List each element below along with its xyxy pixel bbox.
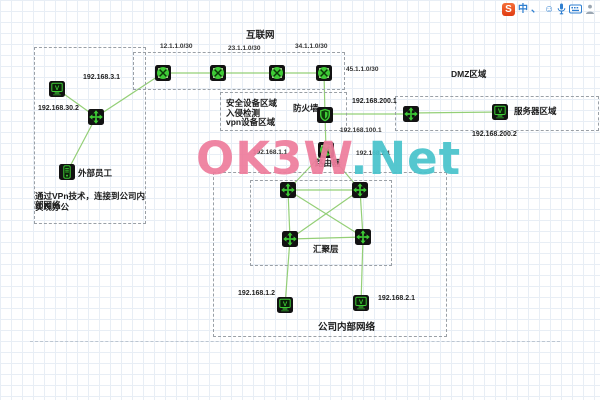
ip-label-router-left: 192.168.1.1 bbox=[253, 149, 287, 156]
firewall-shield-icon bbox=[317, 107, 333, 123]
router-icon-internet-4 bbox=[316, 65, 332, 81]
pc-host-icon-internal-right bbox=[353, 295, 369, 311]
security-area-label-3: vpn设备区域 bbox=[226, 118, 275, 127]
router-icon-internet-2 bbox=[210, 65, 226, 81]
dmz-region-label: DMZ区域 bbox=[451, 70, 486, 79]
core-router-label: 路由器 bbox=[315, 159, 341, 168]
router-icon-internet-1 bbox=[155, 65, 171, 81]
punctuation-toggle[interactable]: 、 bbox=[531, 3, 541, 16]
pc-host-icon-remote bbox=[49, 81, 65, 97]
vpn-note-line2: 实现办公 bbox=[35, 203, 69, 212]
ip-label-dmz-server: 192.168.200.2 bbox=[472, 131, 517, 139]
internal-network-label: 公司内部网络 bbox=[318, 323, 375, 333]
diagram-canvas: V bbox=[0, 0, 600, 400]
switch-icon-agg-top-left bbox=[280, 182, 296, 198]
input-mode-toggle[interactable]: 中 bbox=[518, 3, 528, 16]
ip-label-router-right: 192.168.2.1 bbox=[356, 150, 390, 157]
subnet-label-34: 34.1.1.0/30 bbox=[295, 43, 328, 50]
switch-icon-agg-bottom-left bbox=[282, 231, 298, 247]
switch-icon-agg-top-right bbox=[352, 182, 368, 198]
mobile-device-icon-external-staff bbox=[59, 164, 75, 180]
pc-host-icon-internal-left bbox=[277, 297, 293, 313]
toolbox-icon[interactable] bbox=[585, 4, 595, 15]
aggregation-layer-label: 汇聚层 bbox=[313, 245, 339, 254]
pc-host-icon-server bbox=[492, 104, 508, 120]
ip-label-host-right: 192.168.2.1 bbox=[378, 295, 415, 303]
external-staff-label: 外部员工 bbox=[78, 169, 112, 178]
switch-icon-dmz bbox=[403, 106, 419, 122]
router-icon-core bbox=[318, 142, 334, 158]
router-icon-internet-3 bbox=[269, 65, 285, 81]
input-method-toolbar[interactable]: S 中 、 ☺ bbox=[502, 2, 595, 16]
ip-label-switch3: 192.168.3.1 bbox=[83, 74, 120, 82]
page-boundary-line bbox=[30, 341, 560, 342]
ip-label-pc30: 192.168.30.2 bbox=[38, 105, 79, 113]
ip-label-fw-router: 192.168.100.1 bbox=[340, 127, 382, 134]
internet-region-label: 互联网 bbox=[246, 31, 275, 41]
subnet-label-45: 45.1.1.0/30 bbox=[346, 66, 379, 73]
firewall-label: 防火墙 bbox=[293, 104, 319, 113]
emoji-icon[interactable]: ☺ bbox=[544, 3, 554, 16]
ip-label-host-left: 192.168.1.2 bbox=[238, 290, 275, 298]
switch-icon-agg-bottom-right bbox=[355, 229, 371, 245]
sogou-logo[interactable]: S bbox=[502, 3, 515, 16]
subnet-label-23: 23.1.1.0/30 bbox=[228, 45, 261, 52]
subnet-label-12: 12.1.1.0/30 bbox=[160, 43, 193, 50]
ip-label-fw-dmz: 192.168.200.1 bbox=[352, 98, 397, 106]
microphone-icon[interactable] bbox=[557, 3, 566, 15]
switch-icon-remote bbox=[88, 109, 104, 125]
security-area-label-1: 安全设备区域 bbox=[226, 99, 277, 108]
keyboard-icon[interactable] bbox=[569, 4, 582, 14]
server-area-label: 服务器区域 bbox=[514, 107, 557, 116]
